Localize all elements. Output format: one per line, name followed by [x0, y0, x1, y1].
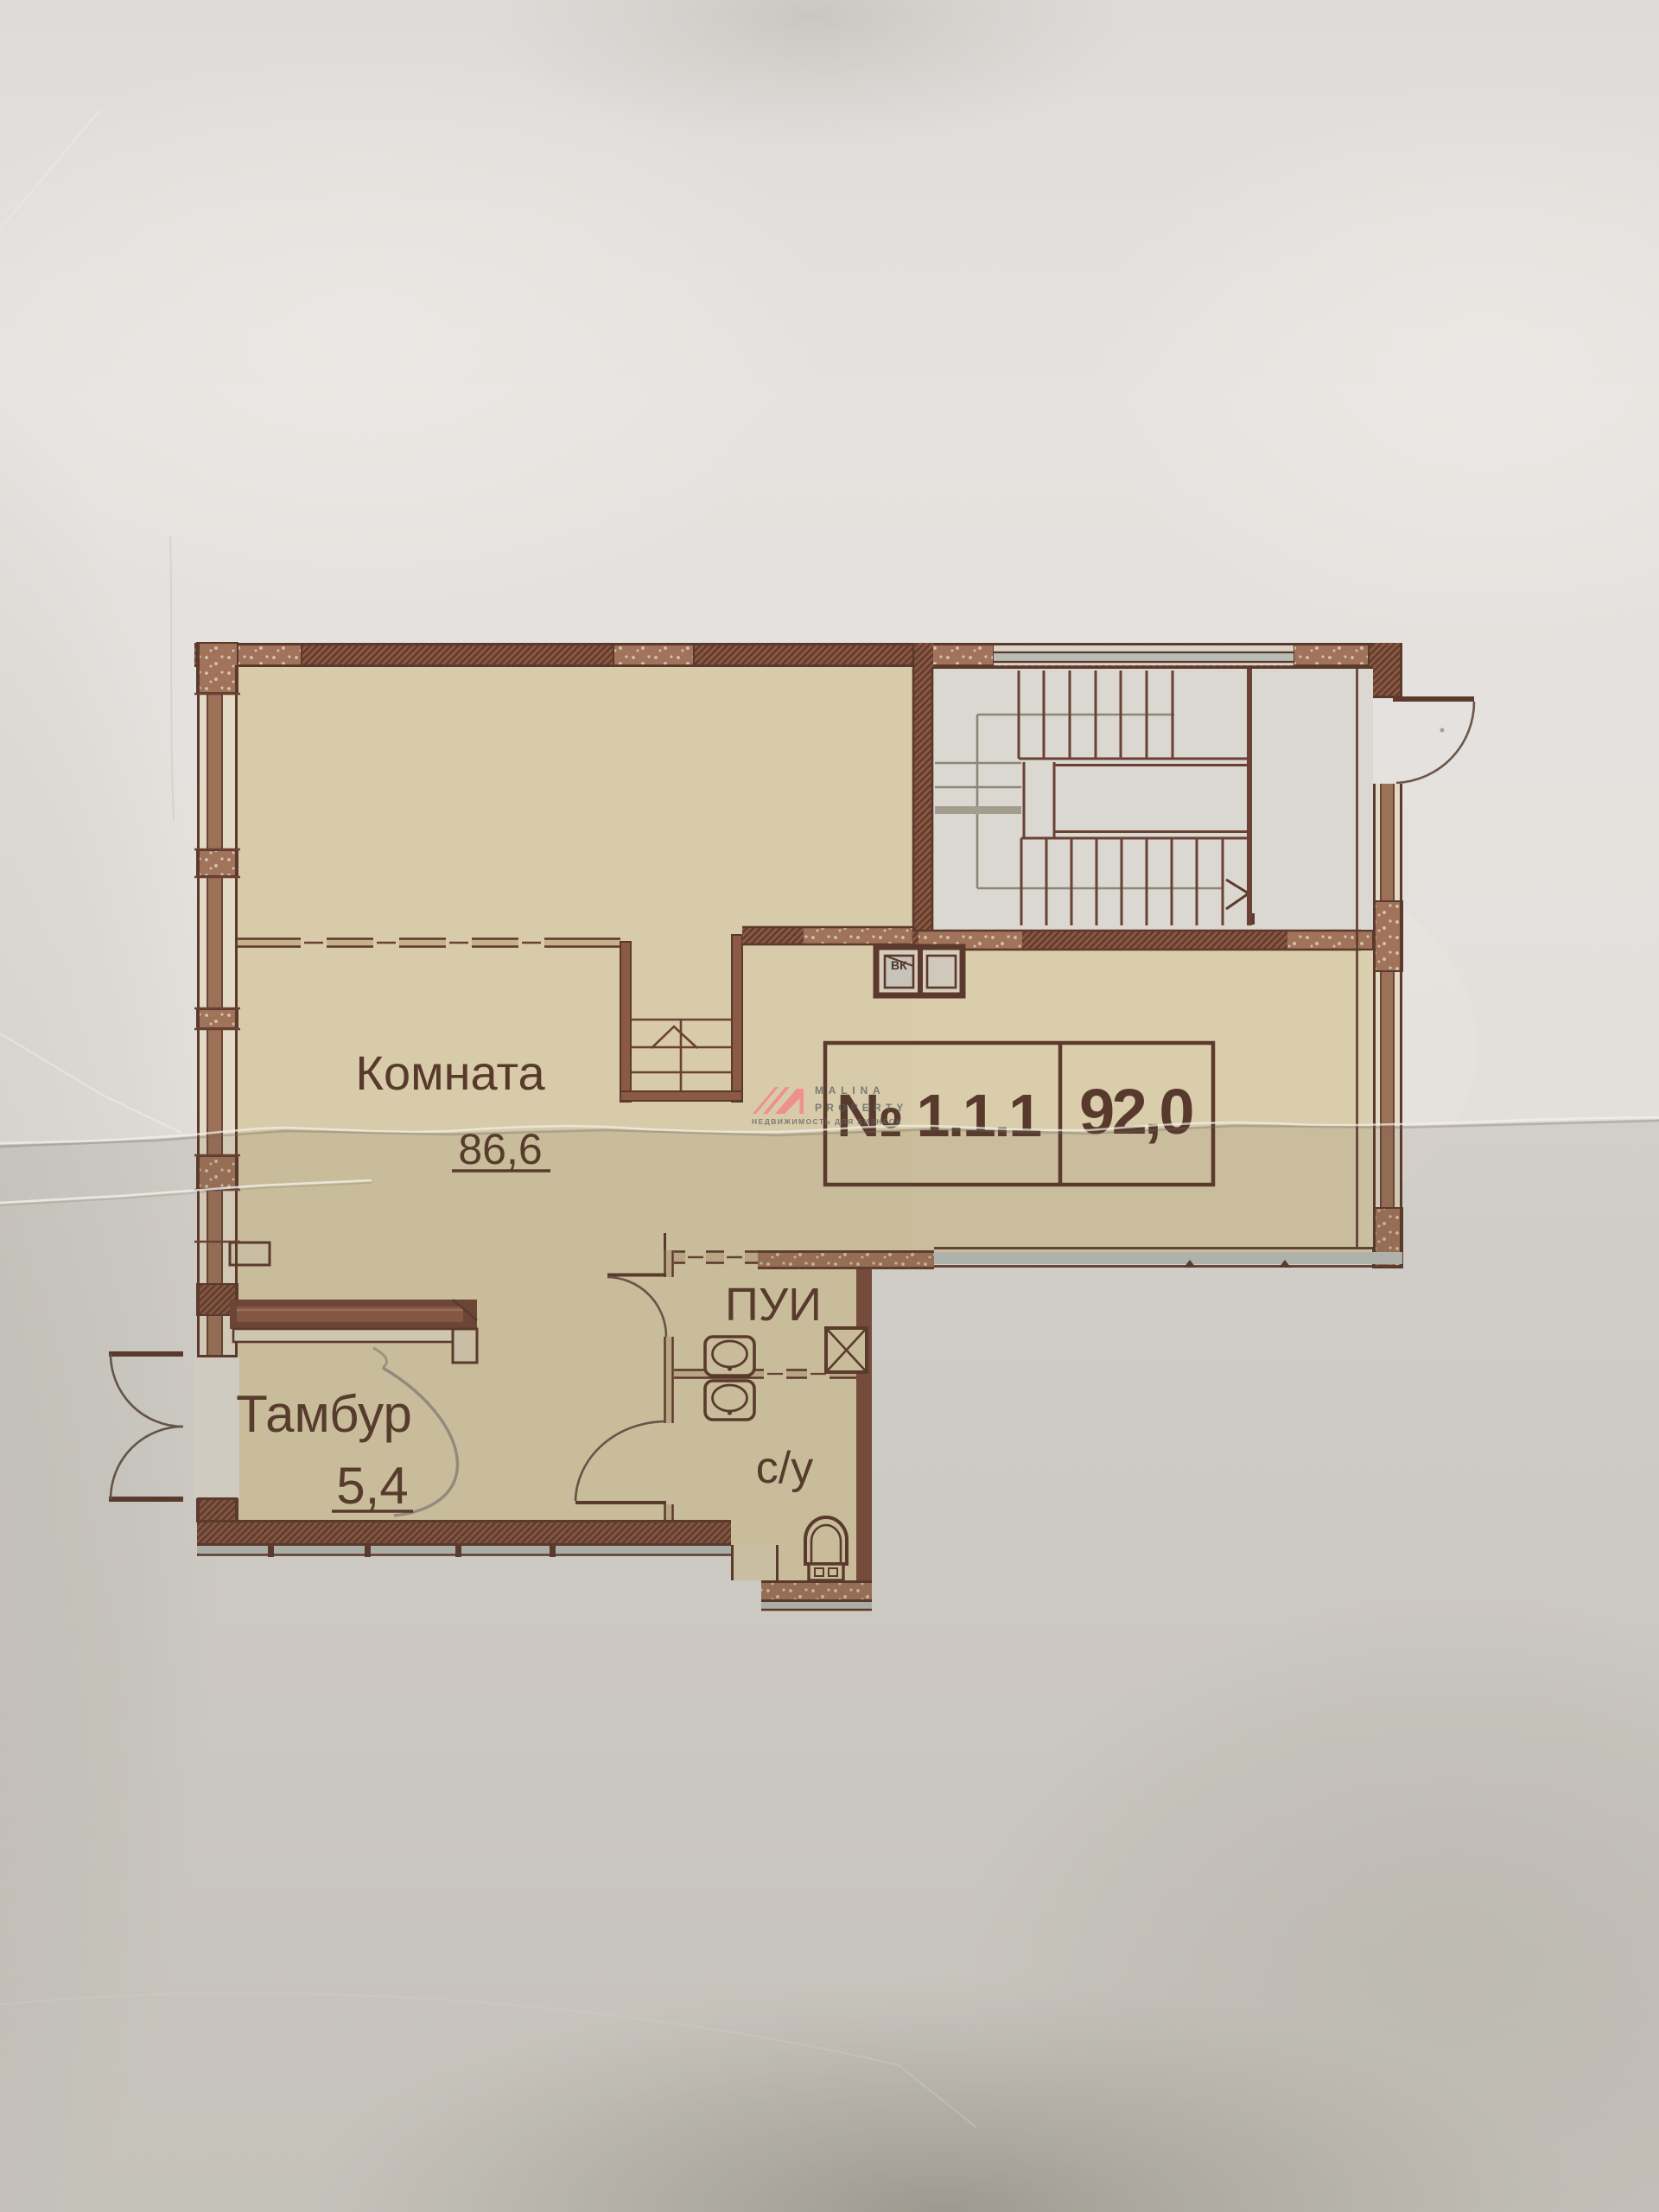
svg-text:ВК: ВК [891, 958, 907, 972]
svg-text:PROPERTY: PROPERTY [815, 1102, 908, 1114]
svg-text:MALINA: MALINA [815, 1084, 885, 1096]
svg-text:НЕДВИЖИМОСТЬ ДЛЯ БИЗНЕСА: НЕДВИЖИМОСТЬ ДЛЯ БИЗНЕСА [752, 1117, 902, 1126]
svg-text:Комната: Комната [355, 1046, 545, 1100]
